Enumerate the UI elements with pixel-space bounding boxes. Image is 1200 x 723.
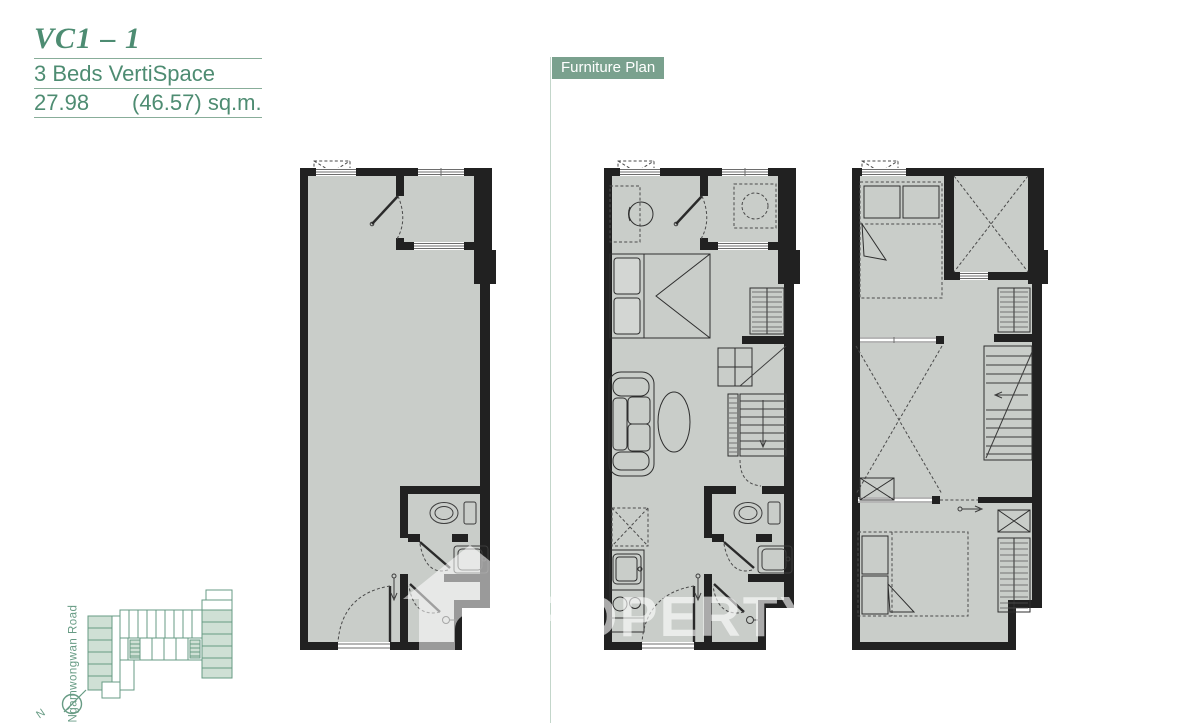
area-value: 27.98	[34, 90, 89, 115]
area-total: (46.57) sq.m.	[132, 90, 262, 116]
watermark-line2: SCOUT	[560, 648, 770, 714]
floor-plan-sheet: VC1 – 1 3 Beds VertiSpace 27.98 (46.57) …	[0, 0, 1200, 723]
divider	[34, 88, 262, 89]
site-map	[78, 588, 240, 700]
compass-n-label: N	[34, 707, 47, 721]
section-divider-line	[550, 57, 551, 723]
unit-code: VC1 – 1	[34, 22, 262, 56]
unit-type: 3 Beds VertiSpace	[34, 61, 262, 87]
unit-area: 27.98 (46.57) sq.m.	[34, 90, 262, 116]
plan-furniture	[600, 160, 800, 654]
divider	[34, 58, 262, 59]
north-compass-icon: N	[28, 684, 92, 722]
plan-unfurnished	[296, 160, 496, 654]
divider	[34, 117, 262, 118]
section-label: Furniture Plan	[552, 57, 664, 79]
plan-upper-level	[848, 160, 1048, 654]
